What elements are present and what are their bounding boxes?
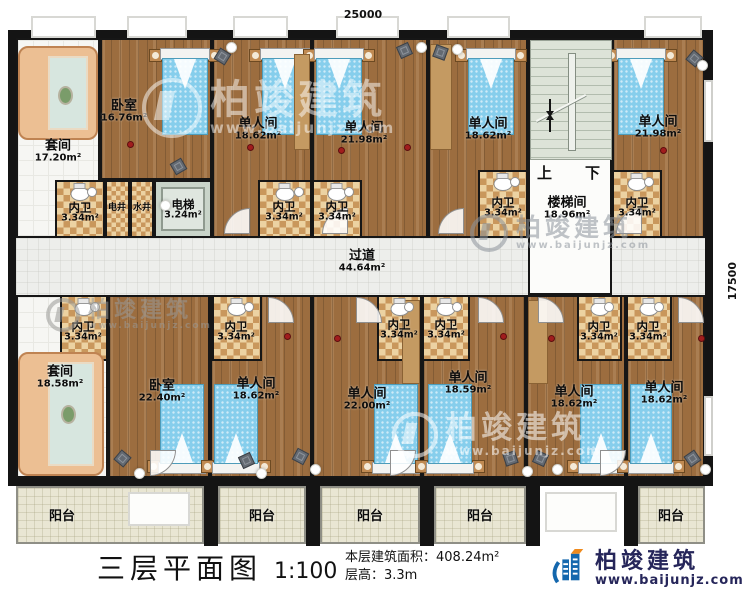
drawing-title-group: 三层平面图1:100 — [95, 547, 347, 589]
room-single-top-4-name: 单人间 — [635, 116, 681, 130]
sink-icon — [452, 302, 462, 312]
room-suite-bottom-area: 18.58m² — [37, 380, 83, 391]
wall-dot-icon — [284, 333, 291, 340]
room-single-bot-3-label: 单人间18.59m² — [445, 372, 491, 397]
ceiling-lamp-icon — [452, 44, 463, 55]
sink-icon — [604, 302, 614, 312]
bath-bot-4-area: 3.34m² — [427, 331, 465, 341]
window-sill — [233, 16, 288, 38]
room-single-bot-2-name: 单人间 — [344, 388, 390, 402]
wall-dot-icon — [404, 144, 411, 151]
dimension-right: 17500 — [726, 262, 739, 300]
bath-top-3-label: 内卫3.34m² — [318, 201, 356, 224]
room-single-bot-5-name: 单人间 — [641, 382, 687, 396]
floor-area-text: 本层建筑面积：408.24m² — [345, 549, 499, 567]
sink-icon — [344, 187, 354, 197]
balcony-4-label: 阳台 — [467, 510, 493, 524]
window-sill — [447, 16, 510, 38]
bed — [428, 384, 472, 472]
brand-block: 柏竣建筑 www.baijunjz.com — [550, 548, 744, 589]
bath-bot-3-area: 3.34m² — [380, 331, 418, 341]
room-stairwell-area: 18.96m² — [544, 211, 590, 222]
wall-dot-icon — [338, 147, 345, 154]
room-single-top-2-area: 21.98m² — [341, 136, 387, 147]
sink-icon — [404, 302, 414, 312]
elevator-label: 电梯3.24m² — [164, 199, 202, 222]
floor-height-text: 层高：3.3m — [345, 567, 499, 585]
ceiling-lamp-icon — [552, 464, 563, 475]
window-sill — [644, 16, 702, 38]
bath-bot-6-area: 3.34m² — [629, 333, 667, 343]
sink-icon — [90, 302, 100, 312]
bath-bot-3-label: 内卫3.34m² — [380, 319, 418, 342]
bath-top-5-label: 内卫3.34m² — [618, 197, 656, 220]
sink-icon — [294, 187, 304, 197]
ceiling-lamp-icon — [522, 466, 533, 477]
title-block: 三层平面图1:100 本层建筑面积：408.24m² 层高：3.3m 柏竣建筑 … — [0, 546, 750, 589]
room-bedroom-top-label: 卧室16.76m² — [101, 100, 147, 125]
room-single-top-1-name: 单人间 — [235, 118, 281, 132]
ceiling-lamp-icon — [416, 42, 427, 53]
drawing-info: 本层建筑面积：408.24m² 层高：3.3m — [345, 549, 499, 585]
balcony-1-name: 阳台 — [49, 510, 75, 524]
balcony-1-label: 阳台 — [49, 510, 75, 524]
sink-icon — [654, 302, 664, 312]
balcony-5-label: 阳台 — [658, 510, 684, 524]
room-single-bot-5-area: 18.62m² — [641, 396, 687, 407]
drawing-title: 三层平面图 — [97, 552, 262, 585]
room-corridor-label: 过道44.64m² — [339, 250, 385, 275]
staircase — [530, 40, 612, 160]
side-window — [704, 396, 713, 456]
shaft-electric-name: 电井 — [108, 204, 126, 214]
ceiling-lamp-icon — [700, 464, 711, 475]
room-suite-top-name: 套间 — [35, 140, 81, 154]
elevator-area: 3.24m² — [164, 211, 202, 221]
balcony-pier — [306, 480, 320, 546]
room-corridor-name: 过道 — [339, 250, 385, 264]
room-bedroom-bottom-name: 卧室 — [139, 380, 185, 394]
ceiling-lamp-icon — [256, 468, 267, 479]
drawing-scale: 1:100 — [274, 559, 337, 584]
balcony-gap-window — [128, 492, 190, 526]
wall-dot-icon — [247, 144, 254, 151]
balcony-pier — [420, 480, 434, 546]
wall-dot-icon — [660, 147, 667, 154]
bath-bot-2-label: 内卫3.34m² — [217, 321, 255, 344]
bath-top-4-area: 3.34m² — [484, 209, 522, 219]
bath-bot-5-label: 内卫3.34m² — [580, 321, 618, 344]
wall-dot-icon — [698, 335, 705, 342]
room-single-bot-1-label: 单人间18.62m² — [233, 378, 279, 403]
window-sill — [31, 16, 96, 38]
room-suite-bottom-name: 套间 — [37, 366, 83, 380]
bath-top-5-area: 3.34m² — [618, 209, 656, 219]
room-single-top-4-area: 21.98m² — [635, 130, 681, 141]
balcony-3-label: 阳台 — [357, 510, 383, 524]
balcony-pier — [526, 480, 540, 546]
brand-name: 柏竣建筑 — [595, 550, 744, 573]
room-bedroom-top-name: 卧室 — [101, 100, 147, 114]
room-single-top-2-name: 单人间 — [341, 122, 387, 136]
bath-bot-5-area: 3.34m² — [580, 333, 618, 343]
sink-icon — [644, 177, 654, 187]
bath-bot-1-area: 3.34m² — [64, 333, 102, 343]
balcony-pier — [204, 480, 218, 546]
wall-dot-icon — [548, 335, 555, 342]
bath-top-1-label: 内卫3.34m² — [61, 202, 99, 225]
room-single-bot-2-area: 22.00m² — [344, 402, 390, 413]
sink-icon — [87, 187, 97, 197]
balcony-gap-window — [545, 492, 617, 532]
room-single-bot-2-label: 单人间22.00m² — [344, 388, 390, 413]
bath-top-2-area: 3.34m² — [265, 213, 303, 223]
room-suite-top-area: 17.20m² — [35, 154, 81, 165]
stairs-up-label: 上 — [537, 162, 552, 183]
room-single-top-1-area: 18.62m² — [235, 132, 281, 143]
ceiling-lamp-icon — [134, 468, 145, 479]
room-single-bot-4-area: 18.62m² — [551, 400, 597, 411]
shaft-water-name: 水井 — [133, 204, 151, 214]
balcony-4-name: 阳台 — [467, 510, 493, 524]
bath-bot-2-area: 3.34m² — [217, 333, 255, 343]
shaft-water-label: 水井 — [133, 204, 151, 214]
room-single-top-3-label: 单人间18.62m² — [465, 118, 511, 143]
bath-top-2-label: 内卫3.34m² — [265, 201, 303, 224]
bath-bot-6-label: 内卫3.34m² — [629, 321, 667, 344]
room-single-bot-3-area: 18.59m² — [445, 386, 491, 397]
bath-top-3-area: 3.34m² — [318, 213, 356, 223]
sink-icon — [244, 302, 254, 312]
brand-logo-icon — [550, 548, 588, 589]
floor-plan-page: 套间17.20m²卧室16.76m²单人间18.62m²单人间21.98m²单人… — [0, 0, 750, 589]
brand-url: www.baijunjz.com — [595, 573, 744, 588]
balcony-pier — [624, 480, 638, 546]
stairs-down-label: 下 — [585, 162, 600, 183]
balcony-5-name: 阳台 — [658, 510, 684, 524]
ceiling-lamp-icon — [697, 60, 708, 71]
stair-arrow-down — [549, 99, 551, 112]
room-bedroom-bottom-area: 22.40m² — [139, 394, 185, 405]
room-single-bot-1-name: 单人间 — [233, 378, 279, 392]
dimension-top: 25000 — [344, 8, 382, 21]
room-stairwell-name: 楼梯间 — [544, 197, 590, 211]
room-single-top-4-label: 单人间21.98m² — [635, 116, 681, 141]
shaft-electric-label: 电井 — [108, 204, 126, 214]
room-single-bot-3-name: 单人间 — [445, 372, 491, 386]
room-single-top-1-label: 单人间18.62m² — [235, 118, 281, 143]
wardrobe — [294, 54, 310, 150]
balcony-2-label: 阳台 — [249, 510, 275, 524]
room-single-bot-4-label: 单人间18.62m² — [551, 386, 597, 411]
room-single-bot-1-area: 18.62m² — [233, 392, 279, 403]
bath-top-1-area: 3.34m² — [61, 214, 99, 224]
wall-dot-icon — [127, 141, 134, 148]
wall-dot-icon — [334, 335, 341, 342]
bath-top-4-label: 内卫3.34m² — [484, 197, 522, 220]
room-bedroom-top-area: 16.76m² — [101, 114, 147, 125]
room-single-bot-4-name: 单人间 — [551, 386, 597, 400]
balcony-3-name: 阳台 — [357, 510, 383, 524]
bath-bot-4-label: 内卫3.34m² — [427, 319, 465, 342]
stair-arrow-up — [549, 119, 551, 132]
room-bedroom-bottom-label: 卧室22.40m² — [139, 380, 185, 405]
side-window — [704, 80, 713, 142]
room-stairwell-label: 楼梯间18.96m² — [544, 197, 590, 222]
room-single-top-3-area: 18.62m² — [465, 132, 511, 143]
room-single-top-2-label: 单人间21.98m² — [341, 122, 387, 147]
wall-dot-icon — [500, 333, 507, 340]
room-corridor-area: 44.64m² — [339, 264, 385, 275]
sink-icon — [510, 177, 520, 187]
room-single-top-3-name: 单人间 — [465, 118, 511, 132]
bath-bot-1-label: 内卫3.34m² — [64, 321, 102, 344]
sofa — [18, 46, 98, 140]
window-sill — [127, 16, 187, 38]
ceiling-lamp-icon — [226, 42, 237, 53]
room-suite-bottom-label: 套间18.58m² — [37, 366, 83, 391]
balcony-2-name: 阳台 — [249, 510, 275, 524]
ceiling-lamp-icon — [310, 464, 321, 475]
room-single-bot-5-label: 单人间18.62m² — [641, 382, 687, 407]
room-suite-top-label: 套间17.20m² — [35, 140, 81, 165]
bed — [162, 50, 208, 135]
